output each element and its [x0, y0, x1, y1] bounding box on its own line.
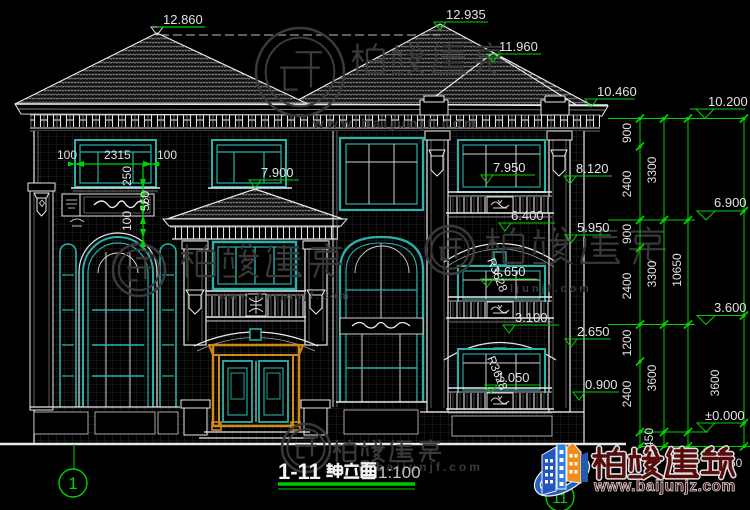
svg-text:7.950: 7.950 [493, 160, 526, 175]
svg-text:2.650: 2.650 [577, 324, 610, 339]
svg-text:3.600: 3.600 [714, 300, 747, 315]
svg-text:100: 100 [120, 211, 134, 231]
svg-text:8.120: 8.120 [576, 161, 609, 176]
svg-text:1-11: 1-11 [278, 459, 321, 484]
svg-text:1:100: 1:100 [378, 463, 421, 482]
svg-text:900: 900 [620, 123, 634, 143]
svg-text:11.960: 11.960 [499, 39, 538, 54]
svg-text:6.900: 6.900 [714, 195, 747, 210]
svg-text:10.200: 10.200 [708, 94, 748, 109]
svg-text:12.935: 12.935 [446, 7, 486, 22]
svg-text:www.baijunjz.com: www.baijunjz.com [593, 478, 736, 495]
svg-text:2400: 2400 [620, 170, 634, 197]
svg-text:2400: 2400 [620, 272, 634, 299]
svg-text:www.baijunjf.com: www.baijunjf.com [312, 115, 480, 131]
svg-text:3600: 3600 [645, 364, 659, 391]
svg-text:100: 100 [57, 148, 77, 162]
svg-text:250: 250 [120, 166, 134, 186]
svg-text:2315: 2315 [104, 148, 131, 162]
svg-text:900: 900 [620, 224, 634, 244]
svg-text:10650: 10650 [670, 253, 684, 287]
svg-text:6.400: 6.400 [511, 208, 544, 223]
svg-text:1: 1 [68, 474, 77, 493]
svg-text:2400: 2400 [620, 380, 634, 407]
svg-text:7.900: 7.900 [261, 165, 294, 180]
svg-text:3300: 3300 [645, 156, 659, 183]
svg-text:ljunjf.com: ljunjf.com [510, 283, 592, 295]
svg-text:5.950: 5.950 [577, 220, 610, 235]
svg-text:12.860: 12.860 [163, 12, 203, 27]
svg-text:1200: 1200 [620, 329, 634, 356]
svg-text:www.baijunjf.com: www.baijunjf.com [218, 291, 352, 302]
svg-text:±0.000: ±0.000 [705, 408, 745, 423]
svg-text:3.100: 3.100 [515, 310, 548, 325]
svg-text:3300: 3300 [645, 260, 659, 287]
svg-text:10.460: 10.460 [597, 84, 637, 99]
svg-text:550: 550 [138, 191, 152, 211]
svg-text:0.900: 0.900 [585, 377, 618, 392]
svg-text:100: 100 [157, 148, 177, 162]
svg-text:3600: 3600 [708, 369, 722, 396]
